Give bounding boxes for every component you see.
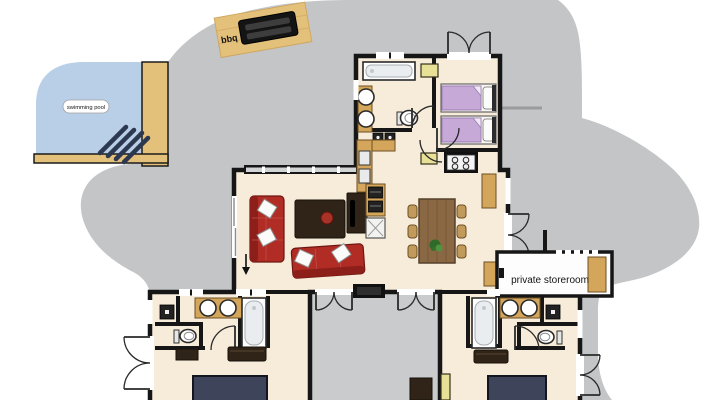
window bbox=[376, 52, 404, 59]
chair-icon bbox=[457, 245, 466, 258]
tv-cabinet-icon bbox=[347, 193, 367, 233]
sofa-icon bbox=[250, 196, 284, 262]
storeroom-label: private storeroom bbox=[511, 275, 589, 286]
bed-icon bbox=[488, 376, 546, 400]
chair-icon bbox=[457, 225, 466, 238]
sink-icon bbox=[358, 89, 374, 105]
window bbox=[354, 80, 359, 100]
dresser-icon bbox=[176, 349, 198, 360]
chair-icon bbox=[408, 205, 417, 218]
sofa-icon bbox=[291, 242, 365, 278]
wardrobe-icon bbox=[588, 257, 606, 292]
courtyard-chimney bbox=[353, 284, 385, 298]
bathtub-icon bbox=[472, 298, 496, 348]
bench-icon bbox=[228, 347, 266, 361]
sink-icon bbox=[200, 300, 216, 316]
window bbox=[236, 289, 266, 296]
sink-icon bbox=[358, 111, 374, 127]
storeroom: private storeroom bbox=[497, 250, 612, 296]
mat-icon bbox=[421, 64, 438, 77]
pool-deck-edge bbox=[34, 154, 168, 163]
sink-icon bbox=[220, 300, 236, 316]
toilet-icon bbox=[538, 331, 562, 345]
kitchen-counter bbox=[484, 262, 497, 286]
window bbox=[148, 300, 153, 324]
bed-icon bbox=[193, 376, 267, 400]
wardrobe-icon bbox=[441, 374, 450, 400]
pool-label: swimming pool bbox=[67, 105, 105, 111]
window bbox=[578, 310, 583, 338]
chair-icon bbox=[408, 225, 417, 238]
pool-deck-vertical bbox=[142, 62, 168, 166]
floor-plan-canvas: swimming pool bbq bbox=[0, 0, 720, 400]
sink-icon bbox=[521, 300, 537, 316]
bathtub-icon bbox=[242, 298, 266, 348]
pool-area: swimming pool bbox=[34, 62, 168, 166]
shower-icon bbox=[546, 305, 560, 319]
dining-table-icon bbox=[419, 199, 455, 263]
window bbox=[506, 178, 511, 204]
appliance-tower bbox=[366, 184, 385, 216]
stove-icon bbox=[444, 152, 478, 173]
window bbox=[244, 165, 358, 174]
bench-icon bbox=[474, 350, 508, 363]
shelf-icon bbox=[499, 268, 504, 278]
sink-icon bbox=[502, 300, 518, 316]
window bbox=[487, 289, 500, 296]
bathtub-icon bbox=[363, 62, 415, 80]
window bbox=[179, 289, 203, 296]
toilet-icon bbox=[174, 330, 196, 344]
twin-bed-icon bbox=[441, 116, 496, 144]
door-gap bbox=[447, 52, 491, 60]
coffee-table-icon bbox=[295, 200, 345, 238]
chair-icon bbox=[408, 245, 417, 258]
courtyard-bench bbox=[410, 378, 432, 400]
kitchen-counter bbox=[482, 174, 496, 208]
shower-icon bbox=[160, 305, 174, 319]
dishwasher-icon bbox=[366, 218, 385, 238]
chair-icon bbox=[457, 205, 466, 218]
sliding-door bbox=[232, 196, 237, 258]
twin-bed-icon bbox=[441, 84, 496, 112]
